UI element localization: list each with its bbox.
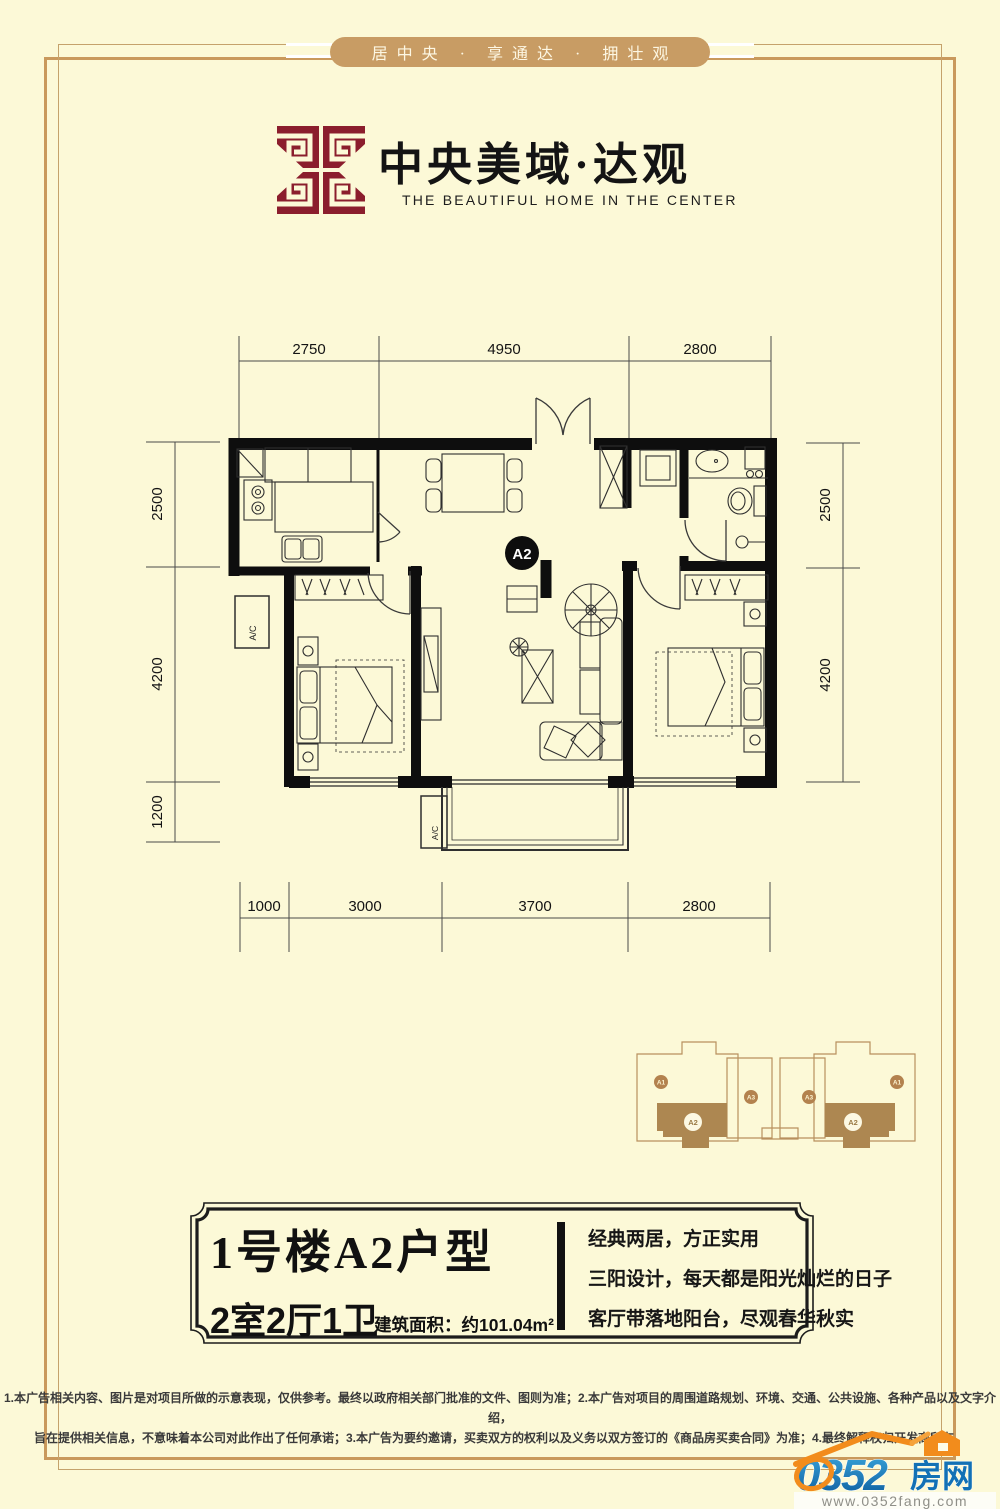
unit-info-box: 1号楼A2户型 2室2厅1卫 建筑面积：约101.04m² 经典两居，方正实用 … — [188, 1200, 816, 1346]
floorplan: 2750 4950 2800 1000 3000 3700 2800 2500 … — [140, 330, 860, 960]
brand-title: 中央美域·达观 — [378, 128, 691, 193]
bathroom-fixtures — [689, 447, 768, 548]
bedroom2-furniture — [656, 575, 768, 752]
balcony — [442, 787, 628, 850]
brand-subtitle: THE BEAUTIFUL HOME IN THE CENTER — [402, 192, 738, 208]
keyplan-unit-a2: A2 — [688, 1118, 698, 1127]
dim-label: 1200 — [149, 795, 166, 828]
disclaimer-line: 1.本广告相关内容、图片是对项目所做的示意表现，仅供参考。最终以政府相关部门批准… — [0, 1388, 1000, 1428]
keyplan-unit-a3: A3 — [805, 1095, 814, 1102]
site-watermark: 0352 房网 www.0352fang.com — [792, 1424, 1000, 1509]
bathroom-door — [685, 520, 726, 561]
slogan-text: 居中央 · 享通达 · 拥壮观 — [363, 40, 678, 64]
feature-line: 客厅带落地阳台，尽观春华秋实 — [588, 1300, 892, 1340]
dim-label: 2800 — [682, 898, 715, 915]
unit-badge-label: A2 — [512, 546, 531, 563]
feature-line: 三阳设计，每天都是阳光灿烂的日子 — [588, 1260, 892, 1300]
info-divider — [557, 1222, 565, 1330]
keyplan-unit-a1: A1 — [893, 1080, 902, 1087]
unit-badge: A2 — [505, 536, 539, 570]
living-room-furniture — [421, 584, 622, 760]
dim-label: 2500 — [149, 487, 166, 520]
kitchen-area — [237, 448, 373, 562]
dim-label: 3000 — [348, 898, 381, 915]
dim-label: 4200 — [817, 658, 834, 691]
dining-set — [426, 454, 522, 512]
building-keyplan: A1 A3 A3 A1 A2 A2 — [630, 1028, 930, 1170]
bedroom1-door — [368, 571, 410, 614]
banner-flank-line — [708, 55, 754, 58]
dim-label: 1000 — [247, 898, 280, 915]
walls — [234, 438, 777, 788]
poster-page: 居中央 · 享通达 · 拥壮观 中央美域·达观 THE BEAUTIFUL HO… — [0, 0, 1000, 1509]
washing-machine — [640, 450, 676, 486]
feature-line: 经典两居，方正实用 — [588, 1220, 892, 1260]
bedroom1-furniture — [295, 575, 404, 770]
bedroom2-door — [638, 566, 680, 609]
dim-label: 3700 — [518, 898, 551, 915]
unit-area: 建筑面积：约101.04m² — [374, 1312, 554, 1337]
dim-label: 4200 — [149, 657, 166, 690]
unit-title: 1号楼A2户型 — [210, 1216, 494, 1282]
keyplan-unit-a1: A1 — [657, 1080, 666, 1087]
keyplan-unit-a3: A3 — [747, 1095, 756, 1102]
banner-flank-line — [286, 43, 332, 46]
dim-label: 2800 — [683, 341, 716, 358]
banner-flank-line — [286, 55, 332, 58]
ac-label: A/C — [248, 625, 258, 641]
watermark-url: www.0352fang.com — [821, 1493, 968, 1509]
dim-label: 4950 — [487, 341, 520, 358]
entry-door — [536, 398, 563, 444]
dim-label: 2750 — [292, 341, 325, 358]
brand-emblem-icon — [277, 126, 365, 214]
dim-label: 2500 — [817, 488, 834, 521]
watermark-cn: 房网 — [910, 1458, 974, 1494]
banner-flank-line — [708, 43, 754, 46]
windows — [310, 778, 736, 786]
keyplan-right-wing — [780, 1042, 915, 1148]
dimension-lines — [146, 336, 860, 952]
kitchen-door — [378, 512, 400, 542]
ac-label: A/C — [430, 826, 440, 840]
slogan-banner: 居中央 · 享通达 · 拥壮观 — [330, 37, 710, 67]
keyplan-unit-a2: A2 — [848, 1118, 858, 1127]
unit-rooms: 2室2厅1卫 — [210, 1292, 378, 1344]
